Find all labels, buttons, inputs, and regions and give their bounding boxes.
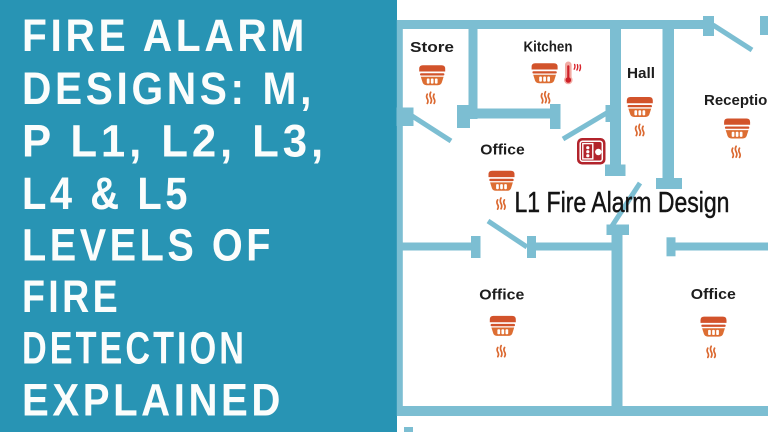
svg-text:Office: Office <box>479 287 524 304</box>
svg-text:DESIGNS: M,: DESIGNS: M, <box>22 63 315 114</box>
svg-text:Reception: Reception <box>704 92 768 109</box>
svg-text:FIRE: FIRE <box>22 271 121 322</box>
svg-text:Hall: Hall <box>627 65 655 82</box>
svg-text:Store: Store <box>410 39 454 56</box>
svg-text:Kitchen: Kitchen <box>524 39 573 56</box>
svg-text:P L1, L2, L3,: P L1, L2, L3, <box>22 116 327 167</box>
svg-text:Office: Office <box>691 286 736 303</box>
svg-text:DETECTION: DETECTION <box>22 323 247 374</box>
svg-text:EXPLAINED: EXPLAINED <box>22 374 284 425</box>
svg-text:Office: Office <box>480 142 525 159</box>
svg-text:L4 & L5: L4 & L5 <box>22 168 191 219</box>
svg-text:L1 Fire Alarm Design: L1 Fire Alarm Design <box>515 187 730 219</box>
svg-text:LEVELS OF: LEVELS OF <box>22 220 274 271</box>
svg-text:FIRE ALARM: FIRE ALARM <box>22 10 308 61</box>
